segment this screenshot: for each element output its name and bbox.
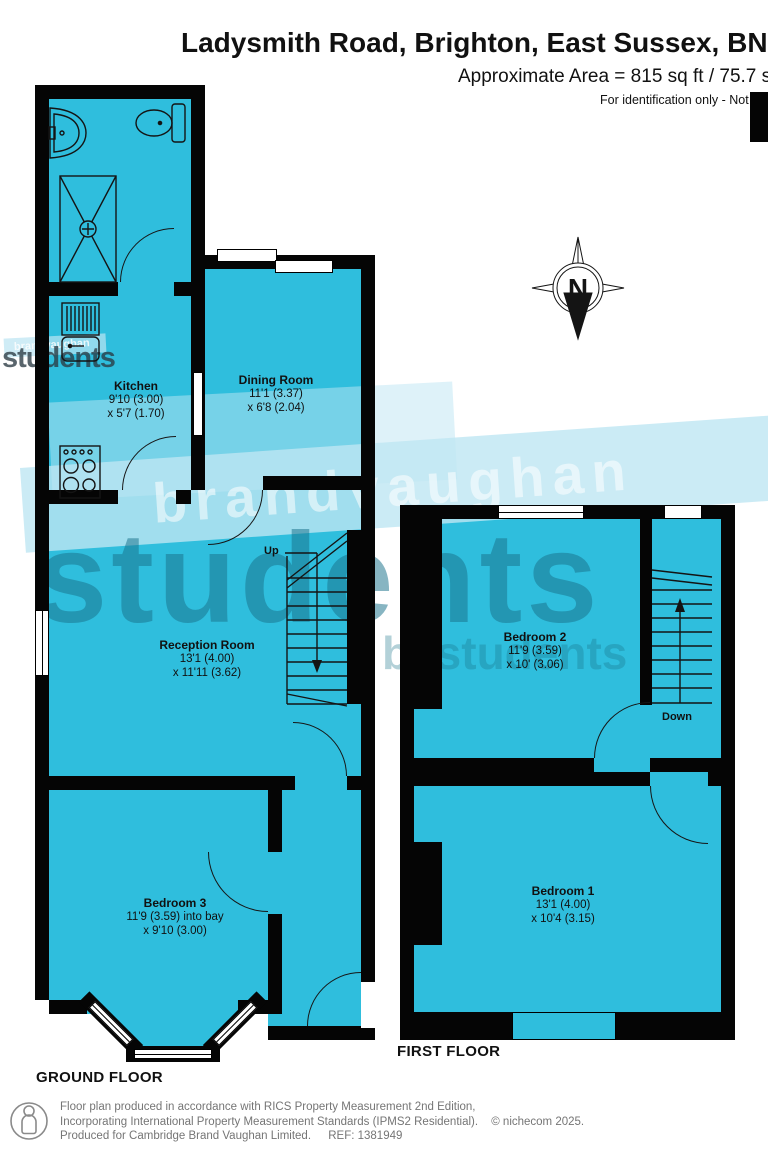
wall-segment bbox=[174, 282, 191, 296]
wall-segment bbox=[263, 476, 361, 490]
stairwell-wall bbox=[347, 530, 361, 704]
bedroom2-label: Bedroom 2 11'9 (3.59) x 10' (3.06) bbox=[470, 630, 600, 672]
wall-segment bbox=[49, 490, 118, 504]
compass-north-label: N bbox=[568, 273, 588, 304]
footer-text: Floor plan produced in accordance with R… bbox=[60, 1100, 584, 1144]
bedroom1-window bbox=[512, 1012, 616, 1040]
wall-segment bbox=[268, 1026, 375, 1040]
reception-window bbox=[35, 610, 49, 676]
footer-line1: Floor plan produced in accordance with R… bbox=[60, 1100, 584, 1115]
stairwell-wall bbox=[640, 519, 652, 705]
kitchen-label: Kitchen 9'10 (3.00) x 5'7 (1.70) bbox=[71, 379, 201, 421]
front-door-opening bbox=[361, 982, 375, 1028]
ground-floor-label: GROUND FLOOR bbox=[36, 1069, 163, 1086]
reception-room-label: Reception Room 13'1 (4.00) x 11'11 (3.62… bbox=[140, 638, 274, 680]
bedroom3-label: Bedroom 3 11'9 (3.59) into bay x 9'10 (3… bbox=[105, 896, 245, 938]
dining-room-label: Dining Room 11'1 (3.37) x 6'8 (2.04) bbox=[211, 373, 341, 415]
wall-segment bbox=[268, 914, 282, 1012]
page-title: Ladysmith Road, Brighton, East Sussex, B… bbox=[181, 27, 768, 59]
stairs-down-label: Down bbox=[662, 711, 692, 723]
wall-segment bbox=[400, 505, 414, 1040]
wall-segment bbox=[49, 282, 118, 296]
wall-segment bbox=[414, 758, 594, 772]
nichecom-logo-icon bbox=[8, 1098, 50, 1144]
dining-window bbox=[275, 260, 333, 273]
copyright: © nichecom 2025. bbox=[491, 1116, 584, 1128]
bedroom2-window bbox=[498, 505, 584, 519]
wall-segment bbox=[35, 85, 205, 99]
wall-segment bbox=[176, 490, 191, 504]
wall-segment bbox=[191, 85, 205, 269]
wall-segment bbox=[347, 776, 361, 790]
wall-segment bbox=[708, 772, 721, 786]
first-floor-label: FIRST FLOOR bbox=[397, 1043, 500, 1060]
reference-number: REF: 1381949 bbox=[328, 1130, 402, 1142]
disclaimer-text: For identification only - Not to scale bbox=[600, 93, 768, 107]
stairs-up-label: Up bbox=[264, 545, 279, 557]
cropped-edge-bar bbox=[750, 92, 768, 142]
wall-segment bbox=[650, 758, 721, 772]
floorplan-page: { "header": { "title": "Ladysmith Road, … bbox=[0, 0, 768, 1161]
wall-segment bbox=[721, 505, 735, 1040]
footer-line2: Incorporating International Property Mea… bbox=[60, 1115, 584, 1130]
wall-segment bbox=[49, 776, 295, 790]
compass-rose: N bbox=[528, 233, 628, 341]
approximate-area-text: Approximate Area = 815 sq ft / 75.7 sq m bbox=[458, 66, 768, 88]
wall-segment bbox=[414, 772, 650, 786]
stairwell-window bbox=[664, 505, 702, 519]
wall-segment bbox=[268, 790, 282, 852]
chimney-breast bbox=[414, 842, 442, 945]
footer-line3: Produced for Cambridge Brand Vaughan Lim… bbox=[60, 1129, 584, 1144]
bedroom1-label: Bedroom 1 13'1 (4.00) x 10'4 (3.15) bbox=[498, 884, 628, 926]
wall-segment bbox=[35, 85, 49, 1000]
wall-segment bbox=[361, 255, 375, 790]
chimney-breast bbox=[414, 519, 442, 709]
dining-window bbox=[217, 249, 277, 262]
bay-window-pane bbox=[134, 1049, 212, 1059]
